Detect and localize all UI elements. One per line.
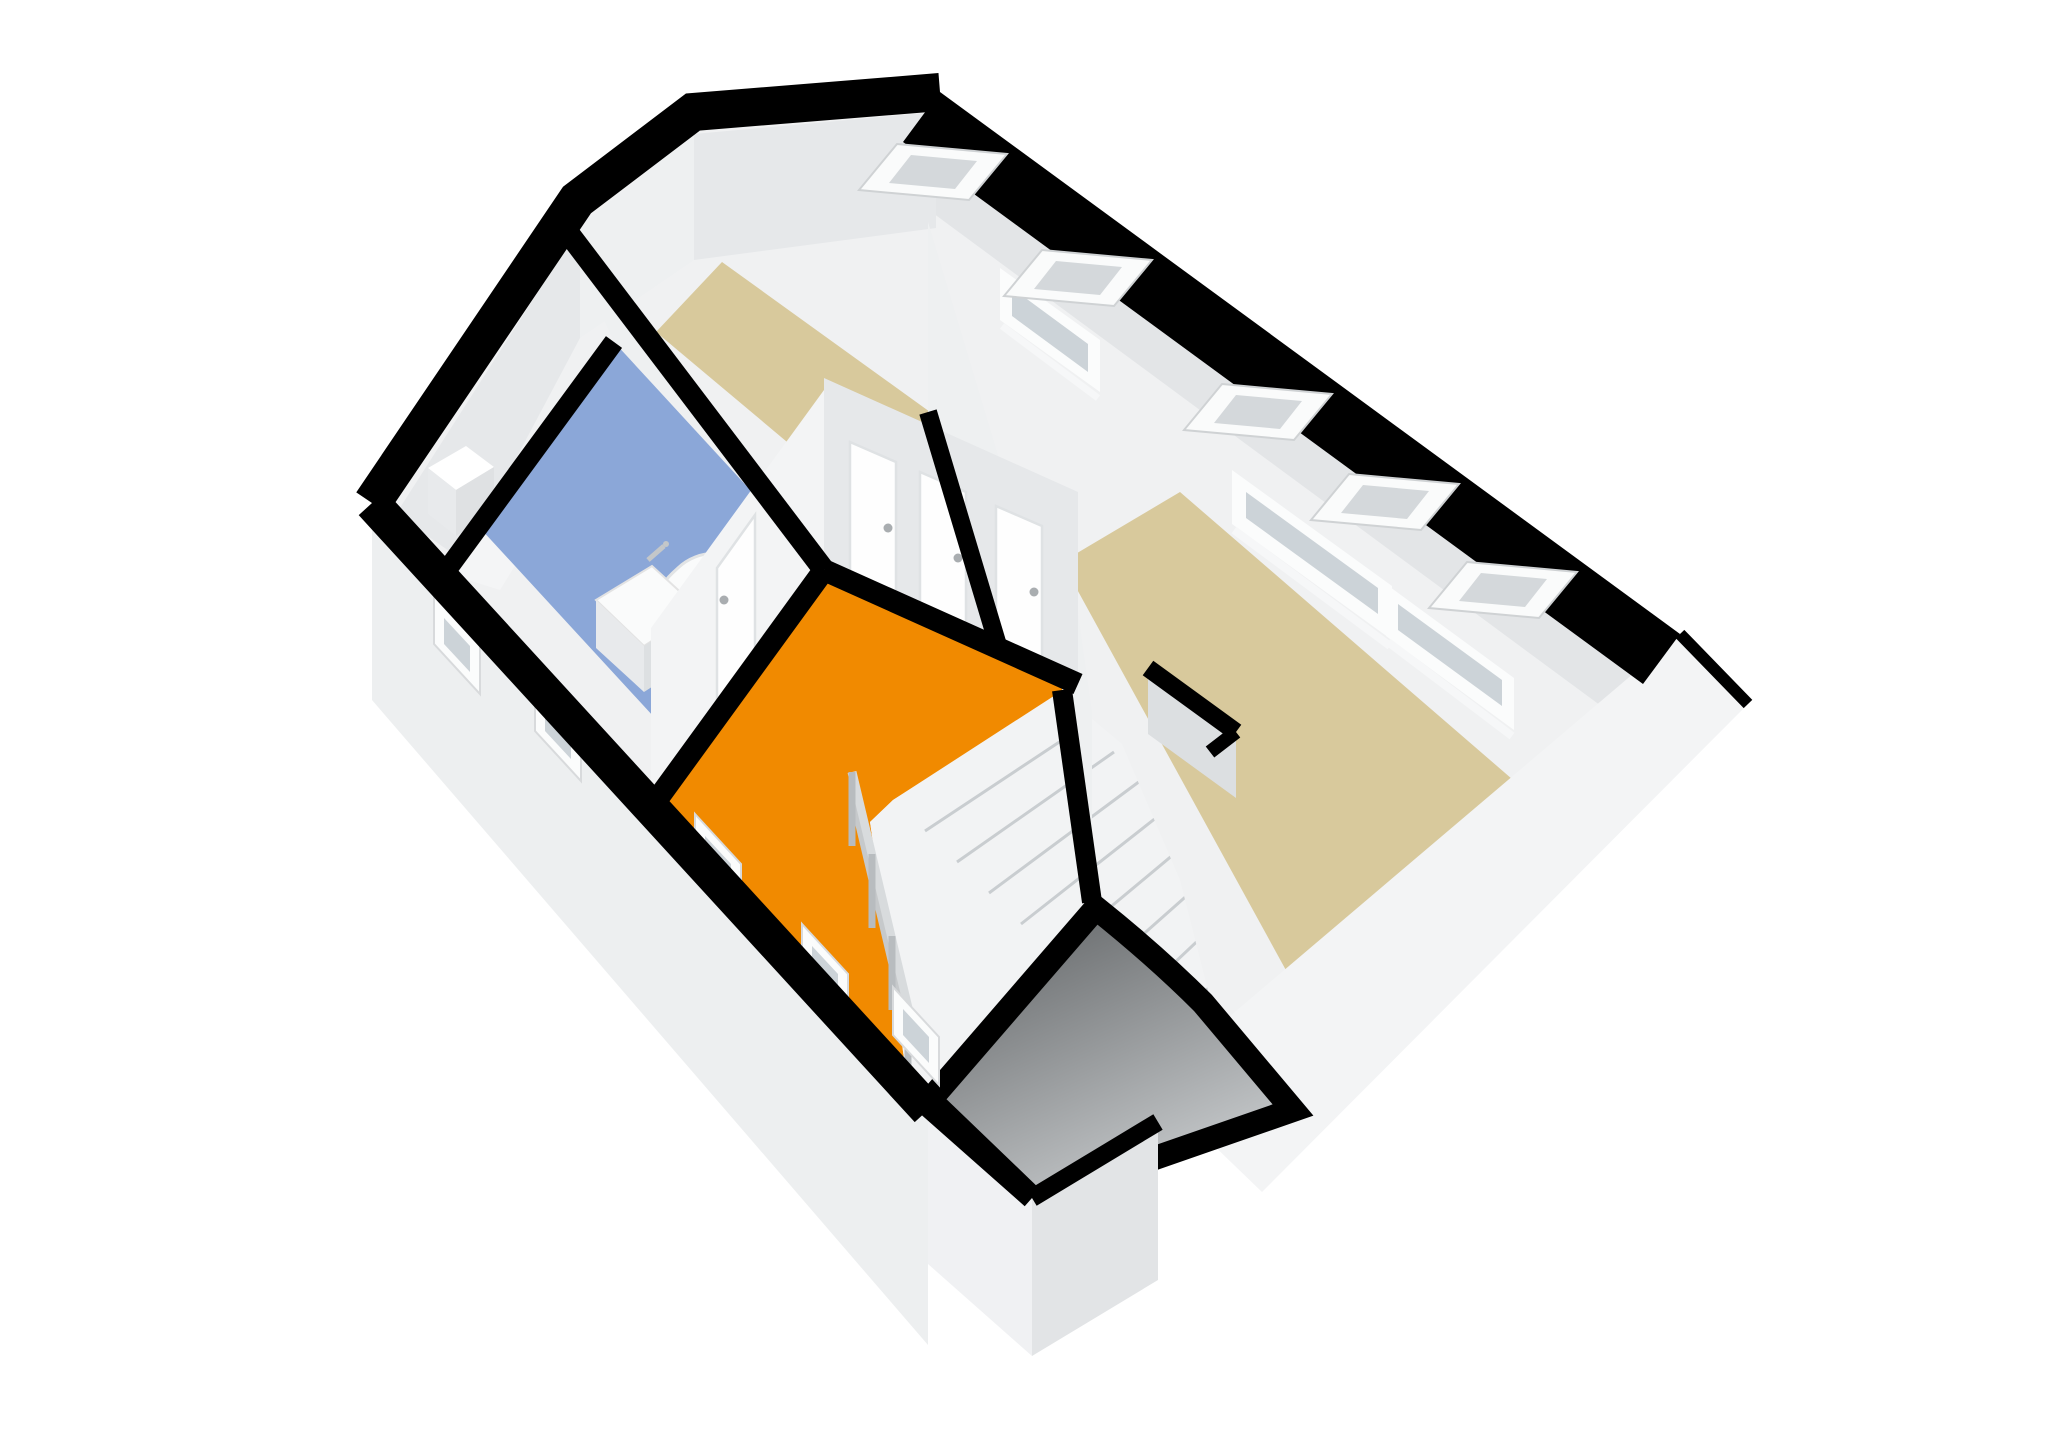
floorplan-3d-view bbox=[0, 0, 2048, 1449]
door-1-handle bbox=[884, 524, 893, 533]
door-2-handle bbox=[954, 554, 963, 563]
faucet-head bbox=[663, 541, 669, 547]
floorplan-canvas bbox=[0, 0, 2048, 1449]
door-3-handle bbox=[1030, 588, 1039, 597]
door-4-handle bbox=[720, 596, 729, 605]
